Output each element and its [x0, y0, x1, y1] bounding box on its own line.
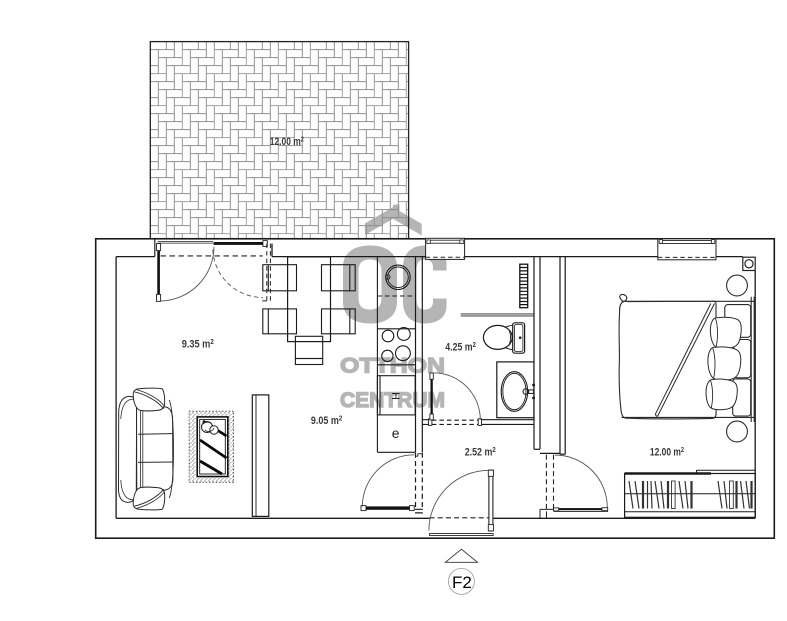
svg-text:F2: F2 — [452, 573, 472, 592]
svg-text:9.35 m2: 9.35 m2 — [182, 339, 214, 351]
svg-text:12.00 m2: 12.00 m2 — [270, 136, 304, 148]
svg-text:2.52 m2: 2.52 m2 — [465, 446, 496, 458]
svg-text:4.25 m2: 4.25 m2 — [445, 341, 476, 353]
svg-text:H: H — [389, 392, 401, 400]
svg-text:e: e — [392, 426, 400, 441]
svg-text:9.05 m2: 9.05 m2 — [311, 415, 343, 427]
svg-text:12.00 m2: 12.00 m2 — [650, 446, 684, 458]
